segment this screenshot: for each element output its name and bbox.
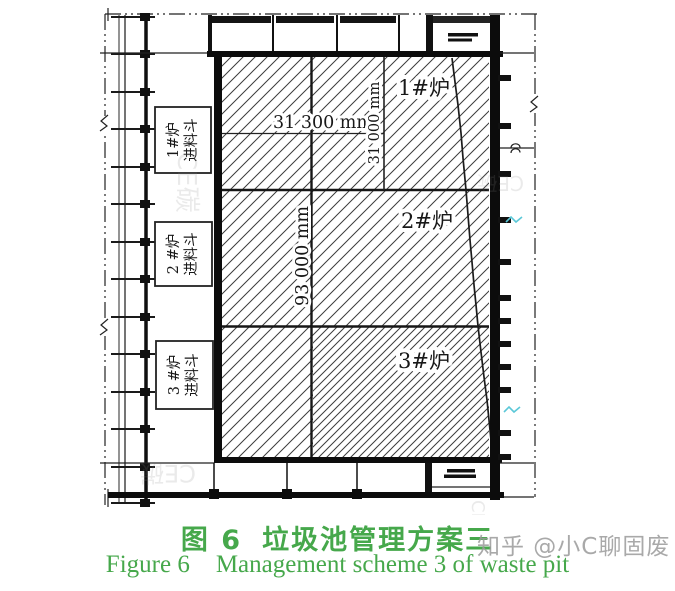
watermark-fragment-1: CE碳 [171,152,201,213]
watermark-fragment-4: CE碳 [467,500,488,515]
hopper-2-box: 2 #炉 进料斗 [155,222,212,286]
furnace-2-label: 2#炉 [401,209,453,233]
dimension-section-height: 31 000 mm [367,81,383,164]
watermark-fragment-3: CE碳 [477,171,524,195]
dimension-pit-length: 93 000 mm [293,206,313,306]
dimension-pit-width: 31 300 mm [273,113,373,133]
hopper-3-feed-label: 进料斗 [184,353,201,397]
hopper-3-box: 3 #炉 进料斗 [156,341,213,409]
furnace-3-label: 3#炉 [398,349,450,373]
top-room-band [100,15,490,53]
hopper-2-feed-label: 进料斗 [183,232,200,276]
watermark-fragment-2: CE碳 [140,459,196,487]
zhihu-watermark: 知乎 @小C聊固废 [477,527,670,561]
left-rail-wall [111,13,155,507]
waste-pit-technical-drawing: 1#炉 进料斗 2 #炉 进料斗 3 #炉 进料斗 1#炉 2#炉 3#炉 31… [0,0,675,515]
illegible-label-bottom [444,469,476,478]
hopper-2-furnace-label: 2 #炉 [165,234,182,274]
figure-screenshot: 1#炉 进料斗 2 #炉 进料斗 3 #炉 进料斗 1#炉 2#炉 3#炉 31… [0,0,675,591]
break-mark-cyan-2 [504,407,520,412]
hopper-3-furnace-label: 3 #炉 [166,355,183,395]
furnace-1-label: 1#炉 [398,76,450,100]
caption-en-figure-number: Figure 6 [106,551,190,578]
illegible-label-top [448,33,478,42]
